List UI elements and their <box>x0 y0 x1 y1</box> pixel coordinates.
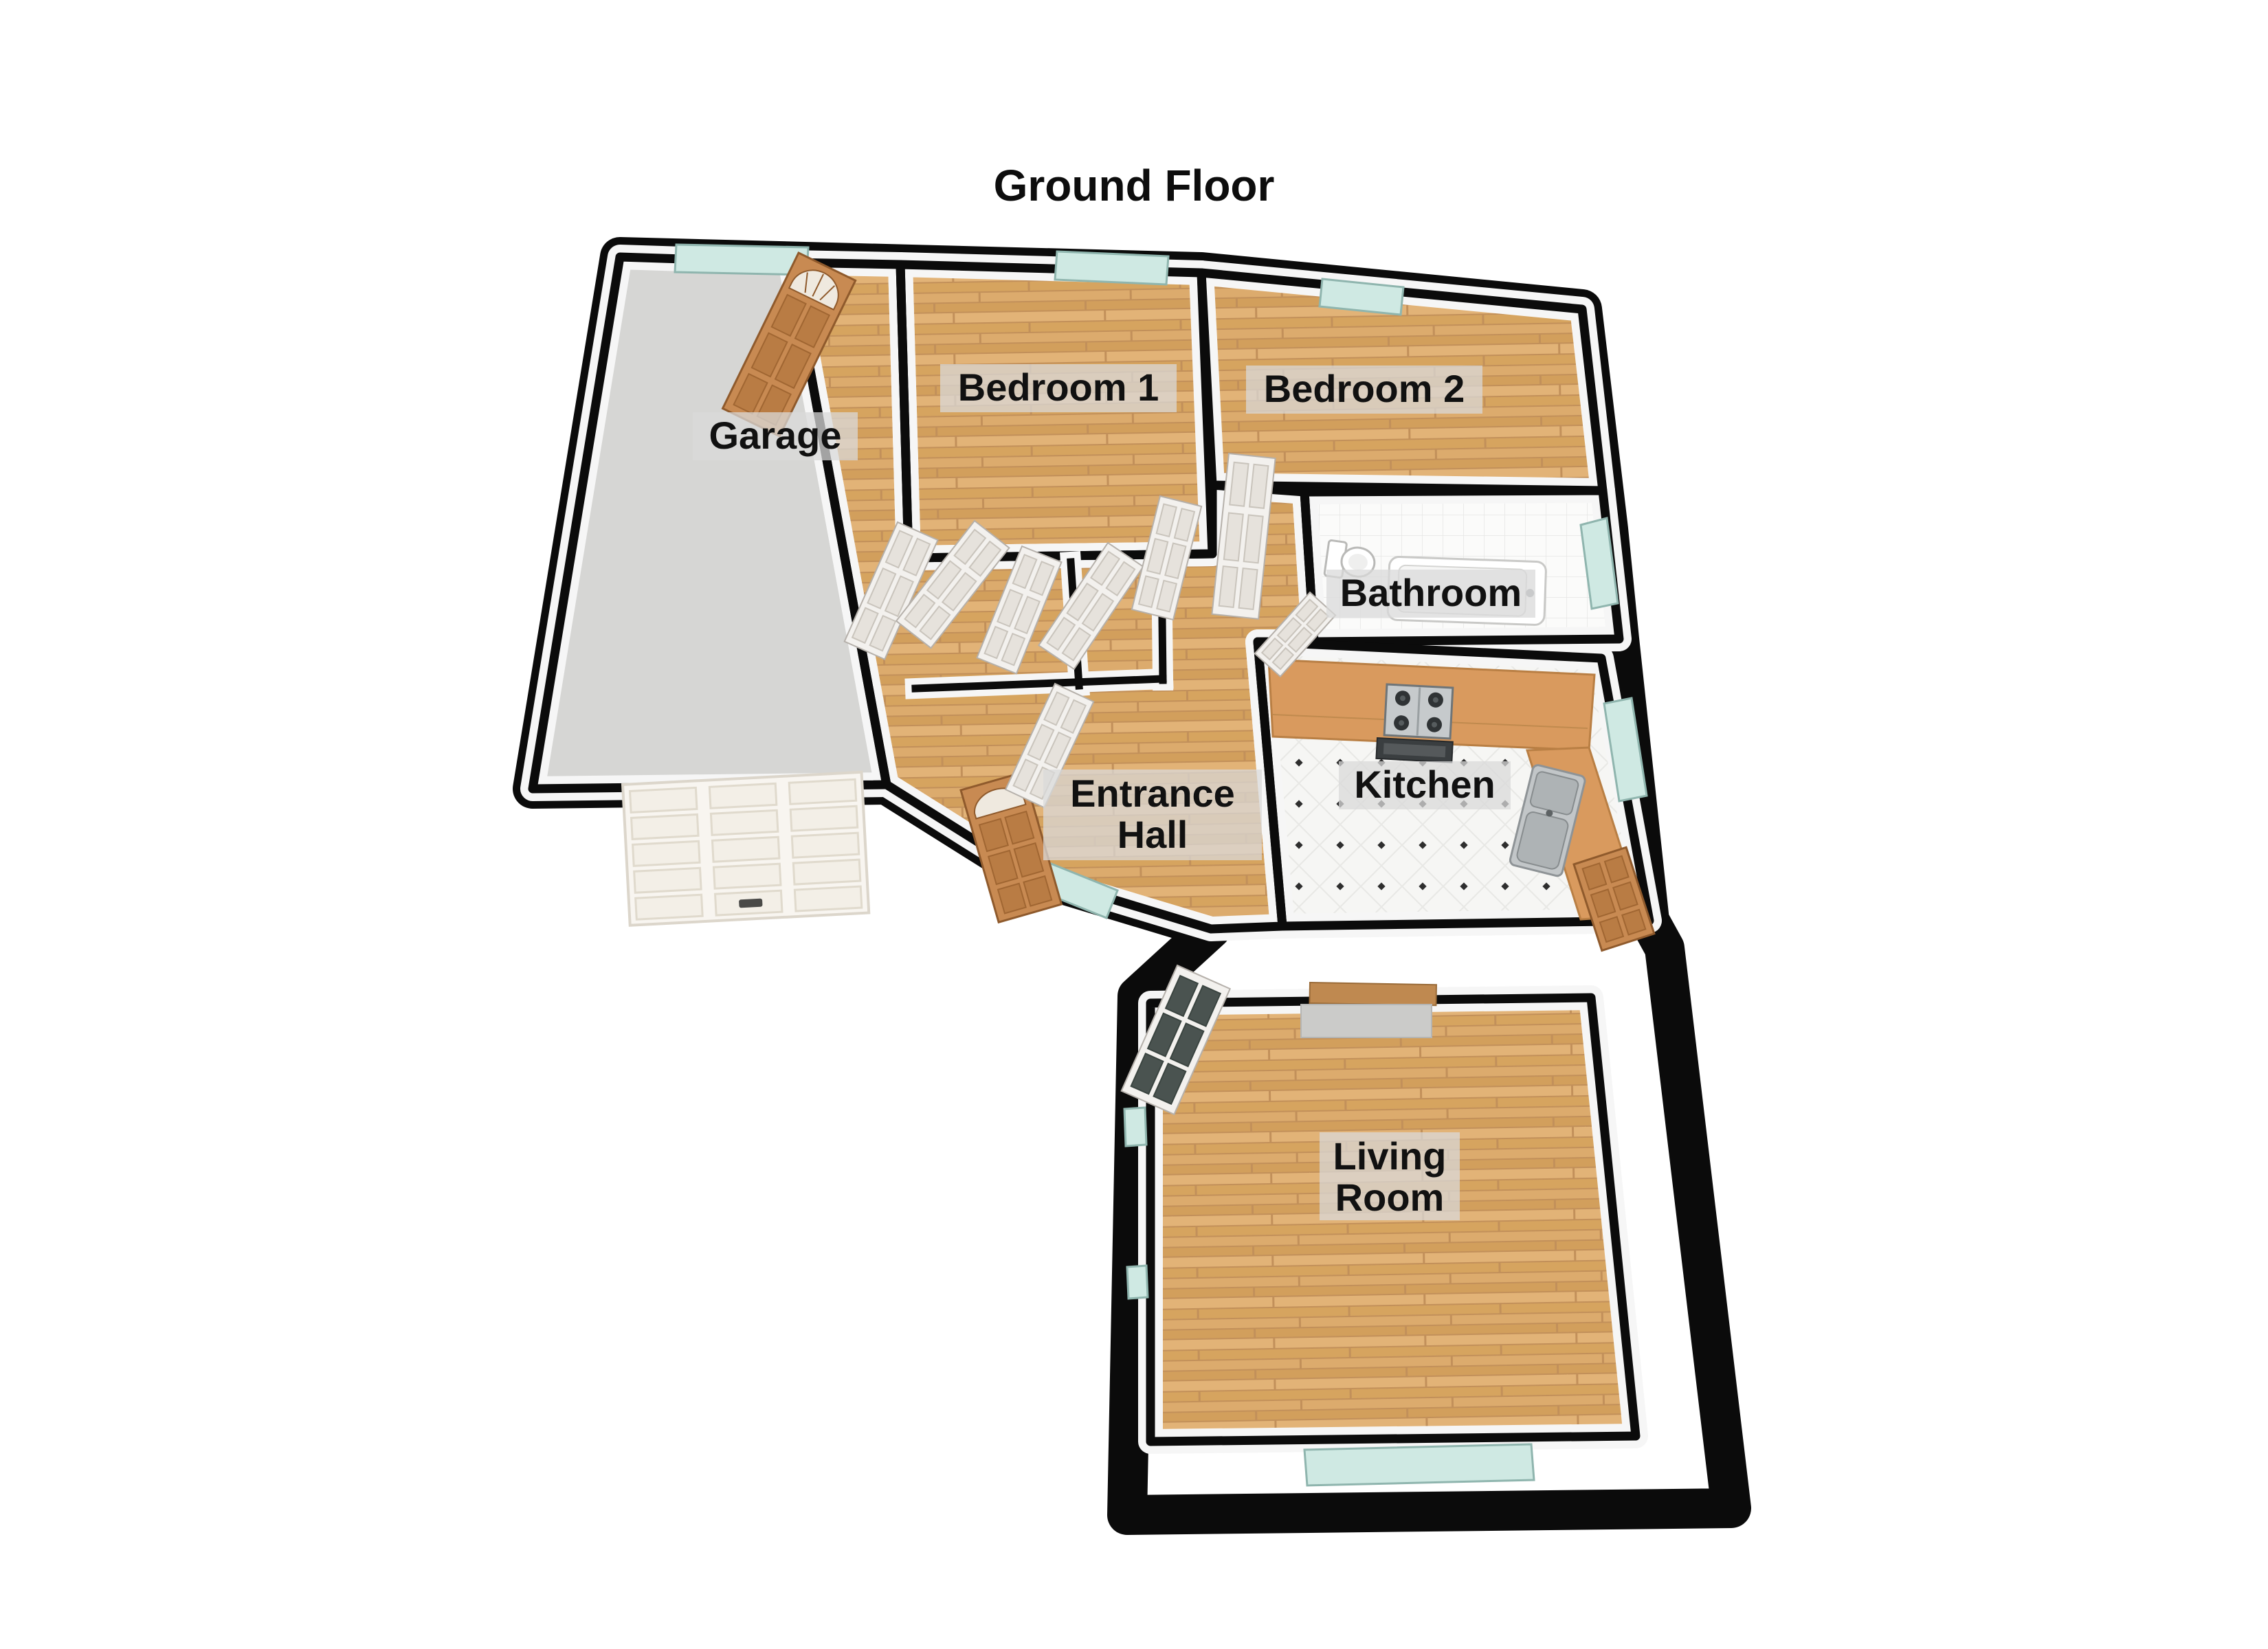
label-bathroom: Bathroom <box>1326 570 1535 618</box>
living-room-left-window-1 <box>1124 1108 1146 1146</box>
label-bedroom1-text: Bedroom 1 <box>958 366 1159 409</box>
label-living-room-line1: Living <box>1333 1134 1447 1178</box>
label-entrance-hall-line1: Entrance <box>1070 772 1235 815</box>
bedroom1-window <box>1055 251 1168 284</box>
label-garage-text: Garage <box>709 414 842 457</box>
oven <box>1376 738 1452 763</box>
label-entrance-hall-line2: Hall <box>1118 813 1188 856</box>
page-title: Ground Floor <box>994 161 1275 210</box>
label-garage: Garage <box>693 412 858 460</box>
label-bedroom1: Bedroom 1 <box>940 364 1177 412</box>
label-living-room: Living Room <box>1320 1132 1460 1220</box>
label-living-room-line2: Room <box>1335 1176 1445 1219</box>
label-kitchen-text: Kitchen <box>1354 763 1495 806</box>
living-room-bottom-window <box>1304 1444 1534 1485</box>
label-bathroom-text: Bathroom <box>1340 571 1522 614</box>
hob <box>1384 684 1453 739</box>
fireplace <box>1301 983 1436 1037</box>
floor-plan-canvas: Ground Floor <box>0 0 2268 1649</box>
living-room-left-window-2 <box>1127 1266 1148 1299</box>
garage-door <box>623 772 869 926</box>
garage-window <box>675 245 808 275</box>
label-kitchen: Kitchen <box>1339 761 1511 809</box>
label-bedroom2: Bedroom 2 <box>1246 366 1482 414</box>
label-entrance-hall: Entrance Hall <box>1043 770 1262 860</box>
label-bedroom2-text: Bedroom 2 <box>1264 367 1465 410</box>
